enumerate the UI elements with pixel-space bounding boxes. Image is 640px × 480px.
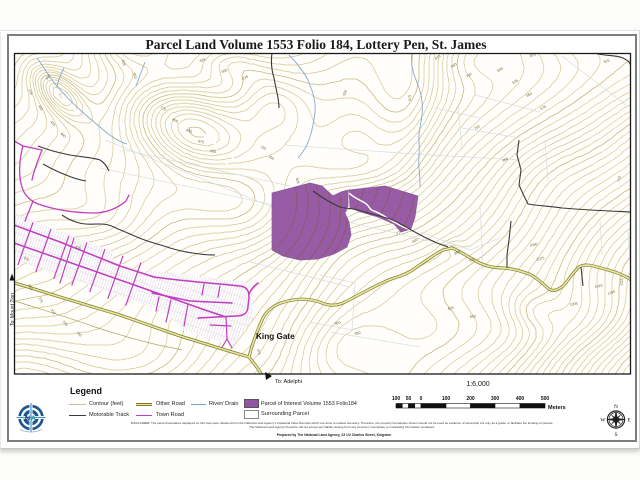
svg-text:100: 100 xyxy=(392,396,401,402)
svg-text:King Gate: King Gate xyxy=(256,332,295,341)
svg-text:715: 715 xyxy=(617,176,622,182)
svg-text:E: E xyxy=(627,418,631,424)
svg-text:0: 0 xyxy=(420,396,423,402)
svg-text:300: 300 xyxy=(491,396,500,402)
svg-text:N: N xyxy=(25,413,30,422)
svg-text:200: 200 xyxy=(466,396,475,402)
svg-text:Meters: Meters xyxy=(548,405,566,411)
svg-text:575: 575 xyxy=(407,95,412,101)
svg-text:850: 850 xyxy=(470,314,476,319)
svg-text:500: 500 xyxy=(541,396,550,402)
svg-text:100: 100 xyxy=(442,396,451,402)
svg-text:W: W xyxy=(600,418,606,424)
svg-text:50: 50 xyxy=(406,396,412,402)
svg-text:S: S xyxy=(614,432,617,438)
svg-text:N: N xyxy=(614,404,618,410)
svg-text:A: A xyxy=(31,413,36,422)
svg-text:To: Mount Zion: To: Mount Zion xyxy=(10,293,16,326)
svg-text:To: Adelphi: To: Adelphi xyxy=(275,379,302,385)
svg-text:400: 400 xyxy=(516,396,525,402)
